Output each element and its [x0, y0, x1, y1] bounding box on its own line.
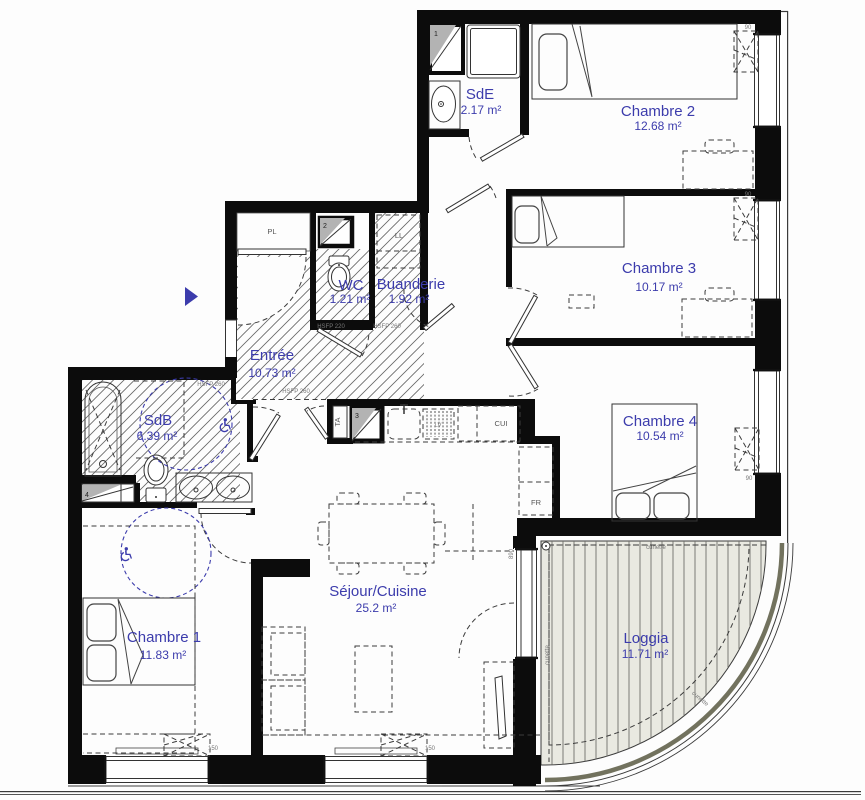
svg-text:90: 90 — [745, 192, 752, 198]
svg-text:10.73 m²: 10.73 m² — [248, 366, 295, 380]
svg-text:LL: LL — [395, 231, 403, 240]
svg-text:FR: FR — [531, 498, 542, 507]
svg-text:11.71 m²: 11.71 m² — [622, 647, 668, 661]
svg-text:4: 4 — [85, 492, 89, 499]
svg-text:Loggia: Loggia — [623, 630, 669, 647]
svg-text:2.17 m²: 2.17 m² — [461, 103, 502, 117]
svg-text:1: 1 — [434, 31, 438, 38]
svg-text:2: 2 — [323, 223, 327, 230]
svg-text:LV: LV — [435, 423, 442, 429]
svg-text:1.92 m²: 1.92 m² — [389, 292, 430, 306]
svg-text:890: 890 — [509, 548, 515, 559]
svg-text:HSFP 220: HSFP 220 — [317, 324, 345, 330]
svg-text:Chambre 4: Chambre 4 — [623, 413, 697, 430]
svg-text:Chambre 1: Chambre 1 — [127, 629, 201, 646]
svg-text:90: 90 — [745, 25, 752, 31]
svg-text:cunette: cunette — [646, 545, 666, 551]
svg-text:Séjour/Cuisine: Séjour/Cuisine — [329, 583, 427, 600]
svg-text:Chambre 3: Chambre 3 — [622, 260, 696, 277]
svg-text:cunette: cunette — [545, 644, 551, 664]
svg-text:3: 3 — [355, 413, 359, 420]
svg-text:HSFP 260: HSFP 260 — [282, 389, 310, 395]
svg-text:Chambre 2: Chambre 2 — [621, 103, 695, 120]
svg-text:HSFP 260: HSFP 260 — [197, 382, 225, 388]
svg-text:11.83 m²: 11.83 m² — [140, 648, 186, 662]
svg-text:6.39 m²: 6.39 m² — [137, 429, 178, 443]
svg-text:1.21 m²: 1.21 m² — [330, 292, 371, 306]
svg-text:25.2 m²: 25.2 m² — [356, 601, 397, 615]
svg-text:TA: TA — [333, 417, 342, 426]
svg-text:150: 150 — [425, 746, 436, 752]
svg-text:HSFP 260: HSFP 260 — [373, 324, 401, 330]
svg-text:Buanderie: Buanderie — [377, 276, 445, 293]
svg-text:SdE: SdE — [466, 86, 494, 103]
svg-text:10.54 m²: 10.54 m² — [636, 429, 683, 443]
svg-text:90: 90 — [746, 476, 753, 482]
svg-text:10.17 m²: 10.17 m² — [635, 280, 682, 294]
svg-text:150: 150 — [208, 746, 219, 752]
svg-text:Entrée: Entrée — [250, 347, 294, 364]
svg-text:SdB: SdB — [144, 412, 172, 429]
svg-text:PL: PL — [267, 227, 276, 236]
svg-text:CUI: CUI — [495, 419, 508, 428]
svg-text:12.68 m²: 12.68 m² — [634, 119, 681, 133]
